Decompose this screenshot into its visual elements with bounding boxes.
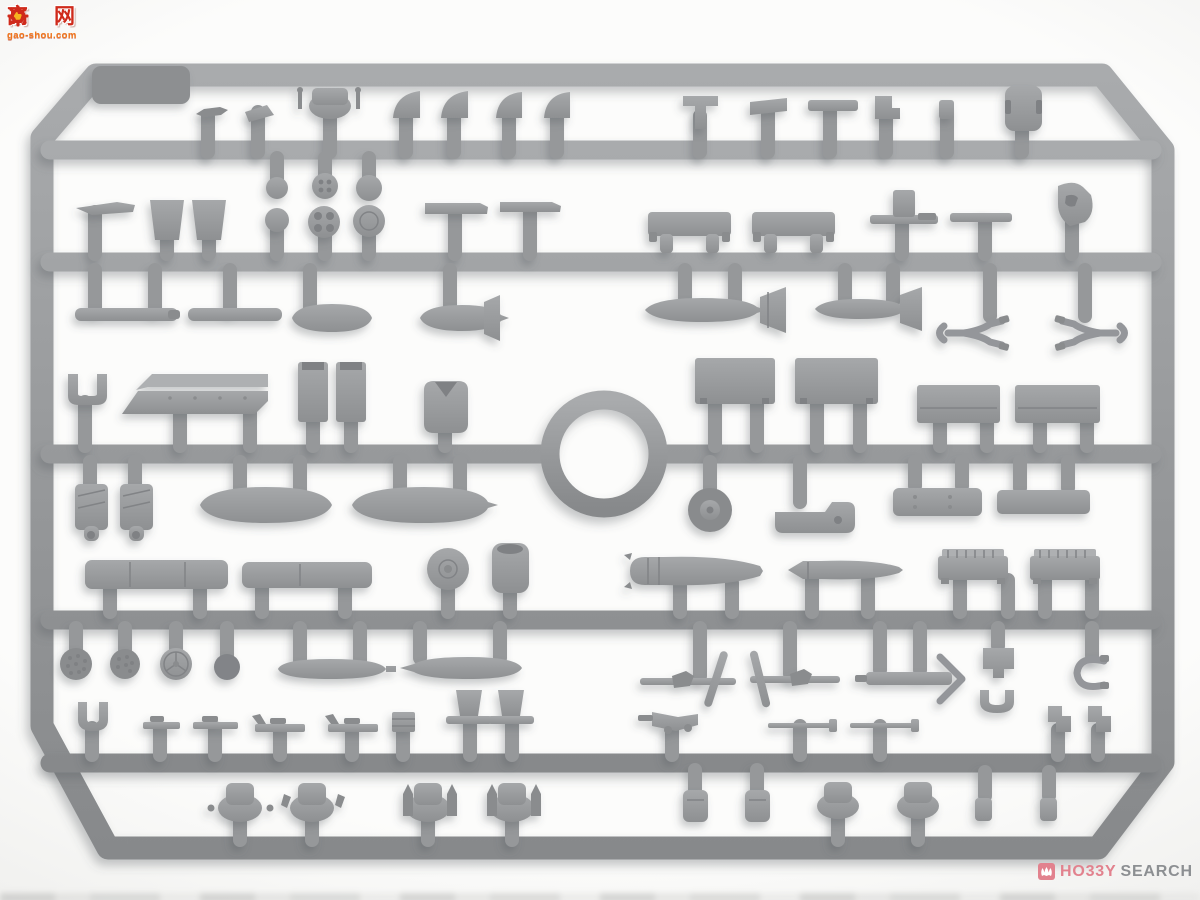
part-fin — [544, 92, 570, 118]
part-u-bracket — [68, 374, 107, 405]
part-block — [683, 790, 708, 822]
part-t-mount — [870, 190, 938, 224]
part-bracket — [683, 96, 718, 129]
part-cap — [487, 783, 541, 822]
part-torpedo — [788, 561, 903, 580]
part-seat — [192, 200, 226, 240]
part-notch-box — [983, 648, 1014, 678]
part-gun-beam — [855, 657, 962, 701]
part-cap — [281, 783, 345, 822]
gear-thumb-icon — [30, 6, 52, 28]
part-u-hook — [980, 690, 1014, 713]
part-engine — [75, 484, 108, 541]
part-small — [975, 798, 992, 821]
part-box-panel — [695, 358, 775, 404]
part-seat-base — [488, 690, 534, 724]
logo-text: HO33YSEARCH — [1060, 863, 1193, 881]
part-box-panel — [795, 358, 878, 404]
part-machine-gun — [325, 714, 378, 732]
part-small-block — [939, 100, 954, 119]
part-chunk — [1058, 183, 1093, 226]
part-crate — [392, 712, 415, 732]
part-flat-bar — [950, 213, 1012, 222]
part-bucket — [492, 543, 529, 593]
part-cylinder — [85, 560, 228, 589]
part-torpedo — [624, 553, 763, 589]
part-cylinder — [997, 490, 1090, 514]
part-gun-carriage — [638, 712, 698, 734]
part-drum — [427, 548, 469, 590]
part-turret — [297, 87, 361, 119]
part-fork — [940, 315, 1010, 351]
part-spoke-wheel — [160, 648, 192, 680]
part-axle — [640, 650, 736, 708]
part-cylinder — [242, 562, 372, 588]
part-engine — [120, 484, 153, 541]
part-seat-pan — [775, 502, 855, 533]
watermark-char-right: 网 — [54, 5, 75, 29]
part-mesh-disc — [110, 649, 140, 679]
part-box — [298, 362, 328, 422]
part-seat-base — [446, 690, 492, 724]
part-mount-block — [1005, 86, 1042, 131]
part-u-clamp — [78, 702, 108, 731]
part-mesh-disc — [60, 648, 92, 680]
part-cap — [817, 782, 859, 819]
part-cap — [897, 782, 939, 819]
part-bomb — [645, 287, 786, 333]
part-bomb — [420, 295, 509, 341]
part-label-plate — [92, 66, 190, 104]
part-table — [648, 212, 731, 253]
part-block — [745, 790, 770, 822]
part-pod — [292, 304, 372, 332]
part-barrel — [188, 308, 282, 321]
part-slat — [425, 203, 488, 214]
part-c-clamp — [1077, 655, 1109, 689]
part-flat — [750, 98, 787, 115]
hobbysearch-mark-icon — [1038, 864, 1055, 881]
part-ribbed-box — [938, 549, 1008, 584]
part-cowling — [424, 381, 468, 433]
watermark-url: gao-shou.com — [7, 30, 87, 41]
sprue-gate-stubs — [76, 110, 1098, 840]
adjacent-photo-edge — [0, 893, 1200, 900]
part-wheel — [688, 488, 732, 532]
part-cylinder — [893, 488, 982, 516]
part-drop-tank — [278, 659, 396, 679]
part-plane-silhouette — [196, 107, 228, 117]
part-seat — [150, 200, 184, 240]
logo-text-search: SEARCH — [1120, 863, 1192, 880]
sprue-center-ring — [550, 400, 658, 508]
part-ribbed-box — [1030, 549, 1100, 584]
part-slat — [500, 202, 561, 212]
part-fin — [496, 92, 522, 118]
part-table — [752, 212, 835, 253]
part-dome — [214, 654, 240, 680]
part-machine-gun — [143, 716, 180, 729]
logo-text-hobby: HO33Y — [1060, 863, 1116, 880]
part-machine-gun — [193, 716, 238, 729]
part-l-piece — [875, 96, 900, 119]
part-box-panel — [917, 385, 1000, 423]
sprue-photo: .bar{stroke:url(#pv);fill:none;stroke-li… — [0, 0, 1200, 900]
part-wing — [76, 202, 135, 215]
part-bomb — [815, 287, 922, 331]
part-cap — [403, 783, 457, 822]
part-discs — [265, 173, 385, 238]
hobbysearch-logo: HO33YSEARCH — [1038, 863, 1193, 881]
watermark: 高 — [7, 5, 87, 41]
part-fuel-tank — [352, 487, 498, 523]
part-ramp — [122, 374, 268, 414]
part-cap — [208, 783, 274, 822]
part-barrel — [75, 308, 180, 321]
part-flat — [808, 100, 858, 111]
part-machine-gun — [252, 714, 305, 732]
part-small — [1040, 798, 1057, 821]
part-fin — [393, 91, 420, 118]
part-box-panel — [1015, 385, 1100, 423]
part-fin — [441, 91, 468, 118]
screenshot: .bar{stroke:url(#pv);fill:none;stroke-li… — [0, 0, 1200, 900]
part-fuel-tank — [200, 487, 332, 523]
part-box — [336, 362, 366, 422]
